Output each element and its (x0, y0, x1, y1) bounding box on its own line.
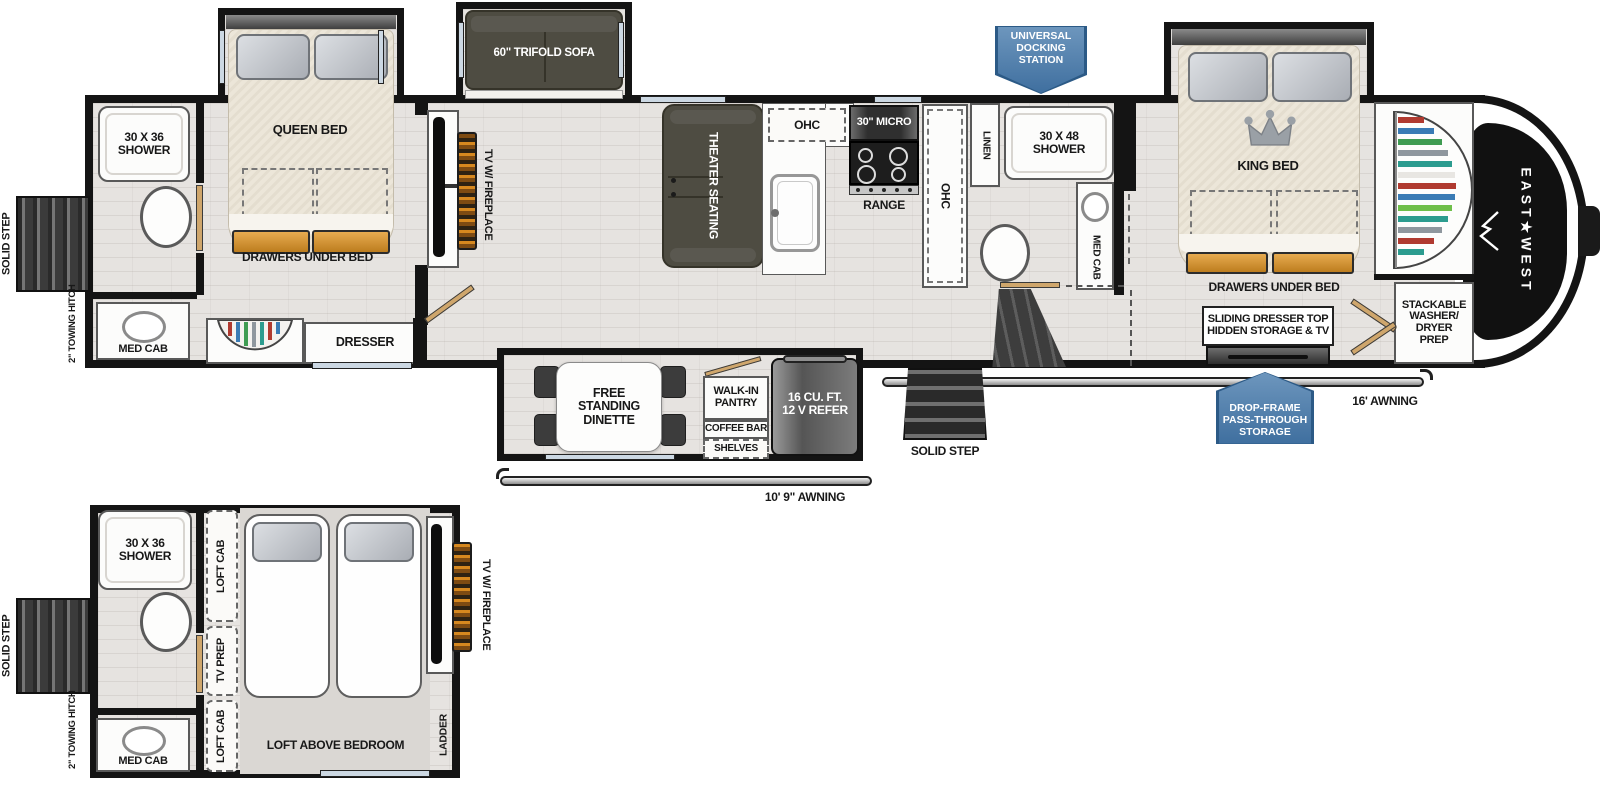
universal-docking-text: UNIVERSAL DOCKING STATION (1011, 31, 1072, 66)
rear-med-cab-label: MED CAB (98, 343, 188, 357)
king-pillow-right (1272, 52, 1352, 102)
hitch-pin (1578, 206, 1600, 256)
kitchen-sink-basin (777, 181, 813, 245)
burner-4 (891, 167, 906, 182)
king-underbed-drawer-right (1272, 252, 1354, 274)
loft-window (320, 770, 430, 777)
queen-slide-window-right (378, 30, 384, 84)
kitchen-sink (770, 174, 820, 252)
loft-ladder-label: LADDER (436, 700, 452, 770)
loft-tv-icon (431, 524, 442, 664)
bedroom-window (312, 362, 412, 369)
refrigerator-handles (783, 355, 847, 363)
rear-bath-wall-lower (196, 253, 204, 295)
sofa-platform (465, 90, 623, 99)
loft-solid-step-label: SOLID STEP (0, 594, 15, 698)
awning-16-hook (1420, 369, 1433, 380)
walk-in-pantry: WALK-IN PANTRY (703, 376, 769, 420)
microwave: 30" MICRO (849, 105, 919, 141)
rear-shower: 30 X 36 SHOWER (98, 106, 190, 182)
kitchen-window-left (640, 96, 726, 103)
range-label: RANGE (849, 198, 919, 212)
loft-pillow-left (252, 522, 322, 562)
fireplace-icon (457, 132, 477, 250)
coffee-bar: COFFEE BAR (703, 420, 769, 439)
awning-10-9 (500, 476, 872, 486)
trifold-sofa: 60" TRIFOLD SOFA (465, 10, 623, 90)
stair-rail-dashed (1130, 290, 1132, 366)
mid-med-cab-label: MED CAB (1081, 228, 1109, 286)
sliding-dresser-label: SLIDING DRESSER TOP HIDDEN STORAGE & TV (1202, 306, 1334, 346)
loft-towing-hitch-label: 2" TOWING HITCH (66, 684, 80, 776)
loft-pillow-right (344, 522, 414, 562)
sofa-backrest (471, 16, 617, 32)
loft-bath-wall-lower (196, 695, 204, 778)
awning-10-9-hook (496, 468, 509, 479)
rear-shower-label: 30 X 36 SHOWER (100, 108, 188, 180)
burner-2 (889, 147, 908, 166)
front-wardrobe (1374, 102, 1474, 278)
loft-solid-step (16, 598, 90, 694)
mid-shower: 30 X 48 SHOWER (1004, 106, 1114, 180)
rear-solid-step-label: SOLID STEP (0, 192, 15, 296)
floorplan-diagram: EAST★WEST SOLID STEP 2" TOWING HITCH 30 … (0, 0, 1600, 790)
queen-headboard (226, 15, 396, 29)
entry-solid-step (903, 368, 987, 440)
master-door-dashed (1128, 194, 1130, 264)
theater-seating: THEATER SEATING (662, 104, 764, 268)
sliding-dresser-unit (1206, 346, 1330, 366)
loft-bath-door (196, 635, 203, 693)
loft-shower-label: 30 X 36 SHOWER (100, 512, 190, 588)
bedroom-wardrobe (206, 318, 304, 364)
kitchen-ohc-right-label: OHC (924, 106, 966, 286)
washer-dryer-prep: STACKABLE WASHER/ DRYER PREP (1394, 282, 1474, 364)
loft-med-cab-label: MED CAB (98, 755, 188, 769)
dresser: DRESSER (304, 322, 426, 364)
rear-med-cab: MED CAB (96, 302, 190, 360)
loft-med-cab-sink (122, 726, 166, 756)
kitchen-ohc: OHC (768, 108, 846, 142)
linen-closet: LINEN (970, 103, 1000, 187)
half-wall-dashed (1066, 285, 1124, 287)
king-sheet-fold (1179, 234, 1359, 252)
crown-icon (1242, 108, 1298, 152)
loft-bath-divider-wall (93, 708, 197, 715)
loft-above-bedroom-label: LOFT ABOVE BEDROOM (248, 738, 423, 752)
mid-med-cab-sink (1081, 192, 1109, 222)
mid-bath-door (1000, 282, 1060, 288)
mid-bath-right-wall (1114, 103, 1124, 295)
sofa-label: 60" TRIFOLD SOFA (467, 38, 621, 68)
theater-seating-label: THEATER SEATING (664, 106, 762, 266)
rear-bath-door (196, 185, 203, 251)
loft-med-cab: MED CAB (96, 718, 190, 772)
mid-med-cab: MED CAB (1076, 182, 1114, 290)
rear-med-cab-sink (122, 311, 166, 343)
kitchen-window-right (874, 96, 922, 103)
loft-toilet (140, 592, 192, 652)
burner-3 (857, 165, 876, 184)
mountain-icon (1478, 208, 1500, 254)
rear-bath-divider-wall (93, 292, 197, 299)
range-cooktop (849, 141, 919, 185)
mid-shower-label: 30 X 48 SHOWER (1006, 108, 1112, 178)
king-pillow-left (1188, 52, 1268, 102)
loft-tv-fireplace-label: TV W/ FIREPLACE (476, 540, 494, 670)
awning-16-label: 16' AWNING (1330, 394, 1440, 409)
range-knob-strip (849, 185, 919, 195)
front-wardrobe-clothes-icon (1376, 104, 1472, 276)
sofa-slide-window-right (618, 22, 624, 78)
loft-tv-prep: TV PREP (206, 626, 238, 696)
queen-pillow-right (314, 34, 388, 80)
closet-washer-wall (1374, 274, 1474, 280)
kitchen-faucet (771, 209, 779, 217)
dinette-table: FREE STANDING DINETTE (556, 362, 662, 452)
loft-bath-wall-upper (196, 505, 204, 633)
king-drawers-label: DRAWERS UNDER BED (1190, 280, 1358, 294)
loft-shower: 30 X 36 SHOWER (98, 510, 192, 590)
brand-logo: EAST★WEST (1496, 150, 1556, 310)
king-bed-label: KING BED (1198, 158, 1338, 174)
tv-icon (433, 117, 445, 257)
dinette-chair-3 (660, 366, 686, 398)
pantry-shelves: SHELVES (703, 439, 769, 459)
rear-toilet (140, 186, 192, 248)
queen-slide-window-left (219, 30, 225, 84)
drop-frame-text: DROP-FRAME PASS-THROUGH STORAGE (1223, 403, 1307, 438)
refrigerator: 16 CU. FT. 12 V REFER (771, 358, 859, 456)
refrigerator-label: 16 CU. FT. 12 V REFER (773, 384, 857, 424)
mid-toilet (980, 224, 1030, 282)
king-headboard (1172, 29, 1366, 45)
dinette-window (545, 454, 675, 460)
dinette-chair-4 (660, 414, 686, 446)
entry-solid-step-label: SOLID STEP (895, 444, 995, 458)
awning-10-9-label: 10' 9" AWNING (740, 490, 870, 505)
sliding-dresser-handle (1228, 355, 1308, 359)
bedroom-door-wall (413, 318, 427, 368)
tv-fireplace-label: TV W/ FIREPLACE (478, 128, 496, 262)
towing-hitch-label: 2" TOWING HITCH (66, 278, 80, 370)
loft-cab-top: LOFT CAB (206, 510, 238, 622)
king-underbed-drawer-left (1186, 252, 1268, 274)
queen-drawers-label: DRAWERS UNDER BED (225, 250, 390, 264)
queen-pillow-left (236, 34, 310, 80)
loft-fireplace-icon (452, 542, 472, 652)
rear-bath-wall-upper (196, 103, 204, 183)
burner-1 (858, 148, 873, 163)
queen-bed-label: QUEEN BED (240, 122, 380, 138)
brand-logo-text: EAST★WEST (1518, 167, 1535, 293)
loft-cab-bottom: LOFT CAB (206, 700, 238, 772)
universal-docking-badge: UNIVERSAL DOCKING STATION (995, 26, 1087, 94)
master-wall (1124, 103, 1136, 191)
wardrobe-clothes-icon (208, 320, 302, 362)
kitchen-ohc-right: OHC (922, 104, 968, 288)
sofa-slide-window-left (458, 22, 464, 78)
